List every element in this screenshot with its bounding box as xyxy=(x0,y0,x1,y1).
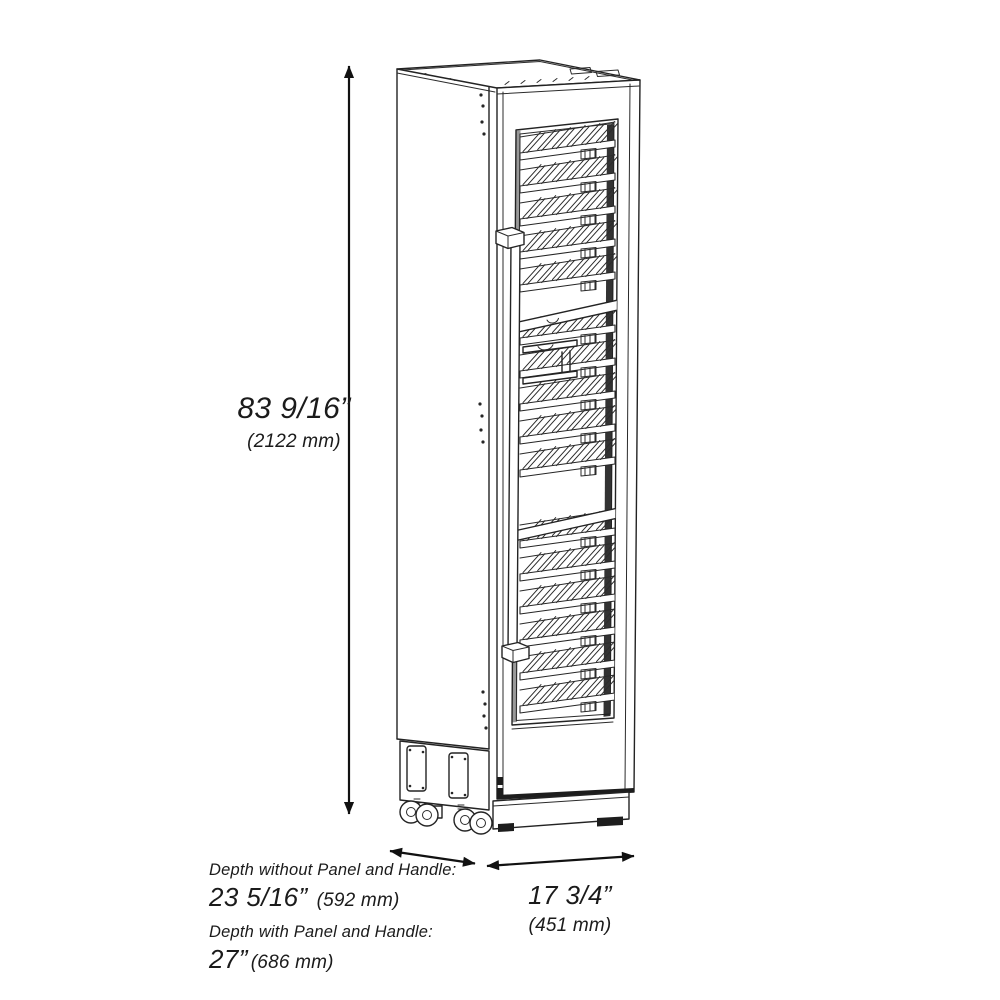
height-dimension-metric: (2122 mm) xyxy=(194,432,394,451)
door-hinge-mark xyxy=(497,777,503,785)
depth-with-panel-label: Depth with Panel and Handle: xyxy=(209,924,433,941)
width-dimension-metric: (451 mm) xyxy=(480,916,660,935)
width-dimension-value: 17 3/4” xyxy=(480,882,660,908)
caster-wheels xyxy=(400,801,492,834)
cabinet-side-panel xyxy=(397,69,495,749)
leveling-foot xyxy=(498,823,514,832)
leveling-foot xyxy=(597,817,623,827)
depth-without-panel-label: Depth without Panel and Handle: xyxy=(209,862,456,879)
depth-without-panel-metric: (592 mm) xyxy=(317,891,400,910)
door-hinge-mark xyxy=(497,788,503,796)
screw-holes xyxy=(478,93,487,729)
depth-with-panel-value: 27” xyxy=(209,946,248,972)
wine-cooler-dimension-diagram: 83 9/16” (2122 mm) 17 3/4” (451 mm) Dept… xyxy=(0,0,1000,1000)
height-dimension-value: 83 9/16” xyxy=(194,394,394,424)
width-dimension-arrow xyxy=(487,856,634,866)
depth-without-panel-value: 23 5/16” xyxy=(209,884,308,910)
cabinet-line-drawing xyxy=(0,0,1000,1000)
depth-without-panel-dimension: 23 5/16” (592 mm) xyxy=(209,884,400,910)
depth-with-panel-metric: (686 mm) xyxy=(251,953,334,972)
depth-with-panel-dimension: 27” (686 mm) xyxy=(209,946,334,972)
